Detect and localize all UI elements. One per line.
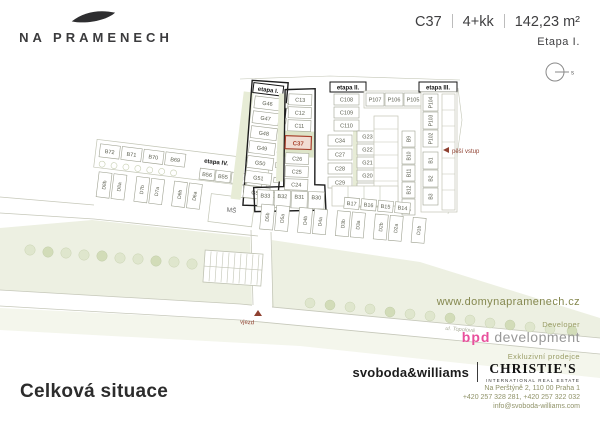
address-line: Na Perštýně 2, 110 00 Praha 1 bbox=[463, 384, 580, 393]
plot-label: C109 bbox=[340, 111, 353, 117]
plot-cell: P102 bbox=[423, 130, 438, 147]
vehicle-entry-label: vjezd bbox=[240, 319, 254, 326]
plot-cell: B32 bbox=[274, 190, 291, 208]
plot-label: B70 bbox=[148, 154, 158, 161]
plot-label: D1b bbox=[416, 225, 423, 235]
plot-cell: C34 bbox=[328, 135, 352, 146]
plot-cell: D2a bbox=[388, 215, 403, 241]
plot-cell: D6a bbox=[186, 183, 202, 209]
plot-label: B56 bbox=[202, 172, 212, 179]
separator bbox=[452, 14, 453, 28]
plot-cell: B70 bbox=[143, 149, 164, 164]
plot-label: B31 bbox=[294, 195, 304, 201]
christies-wordmark: CHRISTIE'S bbox=[486, 361, 580, 377]
broker-logos: svoboda&williams CHRISTIE'S INTERNATIONA… bbox=[352, 361, 580, 383]
plot-label: B3 bbox=[428, 193, 434, 199]
plot-cell: D8b bbox=[96, 172, 112, 198]
svoboda-williams-logo: svoboda&williams bbox=[352, 365, 469, 380]
plot-label: C12 bbox=[295, 110, 305, 116]
plot-cell: D5a bbox=[275, 205, 290, 231]
broker-address: Na Perštýně 2, 110 00 Praha 1 +420 257 3… bbox=[463, 384, 580, 411]
address-line[interactable]: info@svoboda-williams.com bbox=[463, 402, 580, 411]
plot-cell: B14 bbox=[395, 202, 411, 214]
plot-label: C110 bbox=[340, 124, 353, 130]
plot-cell: C12 bbox=[288, 107, 311, 119]
compass-north-label: s bbox=[571, 71, 574, 77]
plot-cell: D8a bbox=[111, 174, 127, 200]
page-title: Celková situace bbox=[20, 381, 168, 403]
plot-cell: C11 bbox=[288, 120, 311, 132]
plot-label: D4a bbox=[317, 217, 324, 227]
developer-label: Developer bbox=[542, 320, 580, 329]
plot-cell: C26 bbox=[286, 153, 309, 165]
plot-cell: B12 bbox=[402, 182, 415, 198]
plot-cell: D6b bbox=[172, 181, 188, 207]
plot-label: B33 bbox=[260, 193, 270, 199]
plot-label: C24 bbox=[291, 182, 301, 188]
plot-label: B71 bbox=[126, 152, 136, 159]
plot-cell: D3a bbox=[350, 212, 365, 238]
developer-suffix: development bbox=[494, 329, 580, 345]
etapa2-block: etapa II. C108 C109 C110 C34 C27 C28 C29… bbox=[328, 82, 424, 215]
plot-cell: P104 bbox=[423, 94, 438, 111]
unit-area: 142,23 m² bbox=[515, 14, 580, 30]
plot-cell: D2b bbox=[373, 214, 388, 240]
plot-label: D6b bbox=[177, 189, 184, 199]
plot-label: P103 bbox=[428, 114, 434, 126]
plot-cell: D7b bbox=[134, 176, 150, 202]
plot-cell: C108 bbox=[334, 94, 359, 105]
plot-cell: B1 bbox=[423, 152, 438, 169]
plot-label: D5a bbox=[280, 213, 287, 223]
plot-cell: B56 bbox=[199, 168, 215, 181]
plot-label: B14 bbox=[397, 205, 407, 212]
brand-logo: NA PRAMENECH bbox=[18, 8, 174, 45]
plot-label: G48 bbox=[258, 131, 269, 138]
plot-label: B16 bbox=[363, 202, 373, 209]
plot-cell: B17 bbox=[344, 197, 360, 209]
plot-cell: B11 bbox=[402, 165, 415, 181]
parking-lot bbox=[203, 250, 263, 286]
plot-label: C108 bbox=[340, 98, 353, 104]
plot-label: D6a bbox=[192, 191, 199, 201]
plot-label: P107 bbox=[369, 98, 382, 104]
plot-label: B10 bbox=[406, 151, 412, 160]
pedestrian-entry-label: pěší vstup bbox=[452, 149, 480, 155]
plot-cell: D1b bbox=[411, 217, 426, 243]
plot-label: B55 bbox=[218, 174, 228, 181]
plot-label: B17 bbox=[346, 201, 356, 208]
developer-brand: bpd bbox=[462, 329, 491, 345]
plot-label: B72 bbox=[104, 149, 114, 156]
stage-label-etapa3: etapa III. bbox=[426, 86, 450, 92]
highlighted-plot-c37: C37 bbox=[285, 136, 311, 150]
logo-divider bbox=[477, 362, 478, 382]
plot-label: C27 bbox=[335, 153, 345, 159]
website-link[interactable]: www.domynapramenech.cz bbox=[437, 296, 580, 308]
plot-cell: D4a bbox=[312, 209, 327, 235]
unit-info: C374+kk142,23 m² bbox=[415, 14, 580, 30]
plot-cell: P105 bbox=[404, 93, 422, 106]
plot-cell: C13 bbox=[289, 94, 312, 106]
plot-label: D2a bbox=[393, 223, 400, 233]
plot-label: B32 bbox=[277, 194, 287, 200]
plot-label: G50 bbox=[255, 160, 266, 167]
plot-label: G46 bbox=[262, 101, 273, 108]
plot-cell: B55 bbox=[215, 170, 231, 183]
separator bbox=[504, 14, 505, 28]
plot-label: D7a bbox=[154, 186, 161, 196]
compass-icon: s bbox=[543, 60, 577, 84]
plot-cell: C25 bbox=[285, 166, 308, 178]
highlighted-plot-label: C37 bbox=[293, 141, 305, 147]
plot-cell: C24 bbox=[285, 179, 308, 191]
plot-cell: B15 bbox=[378, 200, 394, 212]
plot-label: B9 bbox=[406, 136, 412, 142]
plot-label: C26 bbox=[292, 156, 302, 162]
plot-cell: D4b bbox=[297, 207, 312, 233]
plot-label: C11 bbox=[294, 123, 304, 129]
plot-label: C29 bbox=[335, 181, 345, 187]
plot-label: P102 bbox=[428, 132, 434, 144]
plot-label: G22 bbox=[362, 148, 372, 154]
plot-cell: C28 bbox=[328, 163, 352, 174]
plot-label: B30 bbox=[311, 195, 321, 201]
plot-label: B2 bbox=[428, 175, 434, 181]
plot-label: G47 bbox=[260, 116, 271, 123]
plot-cell: D3b bbox=[335, 211, 350, 237]
plot-label: G20 bbox=[362, 174, 372, 180]
logo-title: NA PRAMENECH bbox=[18, 30, 174, 45]
plot-label: B15 bbox=[380, 204, 390, 211]
plot-cell: B30 bbox=[308, 191, 325, 209]
plot-label: C13 bbox=[295, 97, 305, 103]
plot-cell: B10 bbox=[402, 148, 415, 164]
plot-cell: B72 bbox=[99, 144, 120, 159]
plot-label: B1 bbox=[428, 157, 434, 163]
plot-label: P106 bbox=[388, 98, 401, 104]
plot-label: P104 bbox=[428, 96, 434, 108]
plot-label: D4b bbox=[302, 215, 309, 225]
plot-cell: C110 bbox=[334, 120, 359, 131]
etapa3-block: etapa III. P104 P103 P102 B1 B2 B3 bbox=[419, 82, 457, 212]
christies-subtitle: INTERNATIONAL REAL ESTATE bbox=[486, 378, 580, 383]
plot-label: G21 bbox=[362, 161, 372, 167]
plot-label: D3a bbox=[355, 220, 362, 230]
plot-cell: B3 bbox=[423, 188, 438, 205]
plot-label: G49 bbox=[256, 145, 267, 152]
plot-label: C28 bbox=[335, 167, 345, 173]
plot-label: B69 bbox=[170, 157, 180, 164]
plot-cell: C109 bbox=[334, 107, 359, 118]
plot-cell: B2 bbox=[423, 170, 438, 187]
plot-label: G51 bbox=[253, 175, 264, 182]
plot-cell: B16 bbox=[361, 199, 377, 211]
stage-label-etapa2: etapa II. bbox=[337, 86, 360, 92]
plot-label: B11 bbox=[406, 169, 412, 178]
plot-label: B12 bbox=[406, 185, 412, 194]
plot-cell: D7a bbox=[149, 178, 165, 204]
plot-label: C34 bbox=[335, 139, 345, 145]
plot-cell: B71 bbox=[121, 146, 142, 161]
plot-label: D8a bbox=[116, 182, 123, 192]
unit-layout: 4+kk bbox=[463, 14, 494, 30]
plot-label: D2b bbox=[378, 222, 385, 232]
plot-label: D8b bbox=[101, 180, 108, 190]
plot-label: P105 bbox=[407, 98, 420, 104]
plot-cell: P103 bbox=[423, 112, 438, 129]
plot-cell: B31 bbox=[291, 191, 308, 209]
plot-cell: C27 bbox=[328, 149, 352, 160]
plot-label: D5b bbox=[265, 212, 272, 222]
plot-cell: P107 bbox=[366, 93, 384, 106]
christies-logo: CHRISTIE'S INTERNATIONAL REAL ESTATE bbox=[486, 361, 580, 383]
broker-label: Exkluzivní prodejce bbox=[508, 352, 580, 361]
plot-cell: P106 bbox=[385, 93, 403, 106]
plot-label: D3b bbox=[340, 219, 347, 229]
plot-label: G23 bbox=[362, 135, 372, 141]
plot-label: C25 bbox=[292, 169, 302, 175]
address-line: +420 257 328 281, +420 257 322 032 bbox=[463, 393, 580, 402]
unit-stage: Etapa I. bbox=[537, 36, 580, 48]
plot-cell: B69 bbox=[165, 152, 186, 167]
unit-code: C37 bbox=[415, 14, 442, 30]
plot-cell: B9 bbox=[402, 131, 415, 147]
plot-label: D7b bbox=[139, 185, 146, 195]
developer-logo: bpd development bbox=[462, 329, 580, 345]
logo-wave-icon bbox=[70, 8, 122, 26]
plot-cell: D5b bbox=[260, 204, 275, 230]
